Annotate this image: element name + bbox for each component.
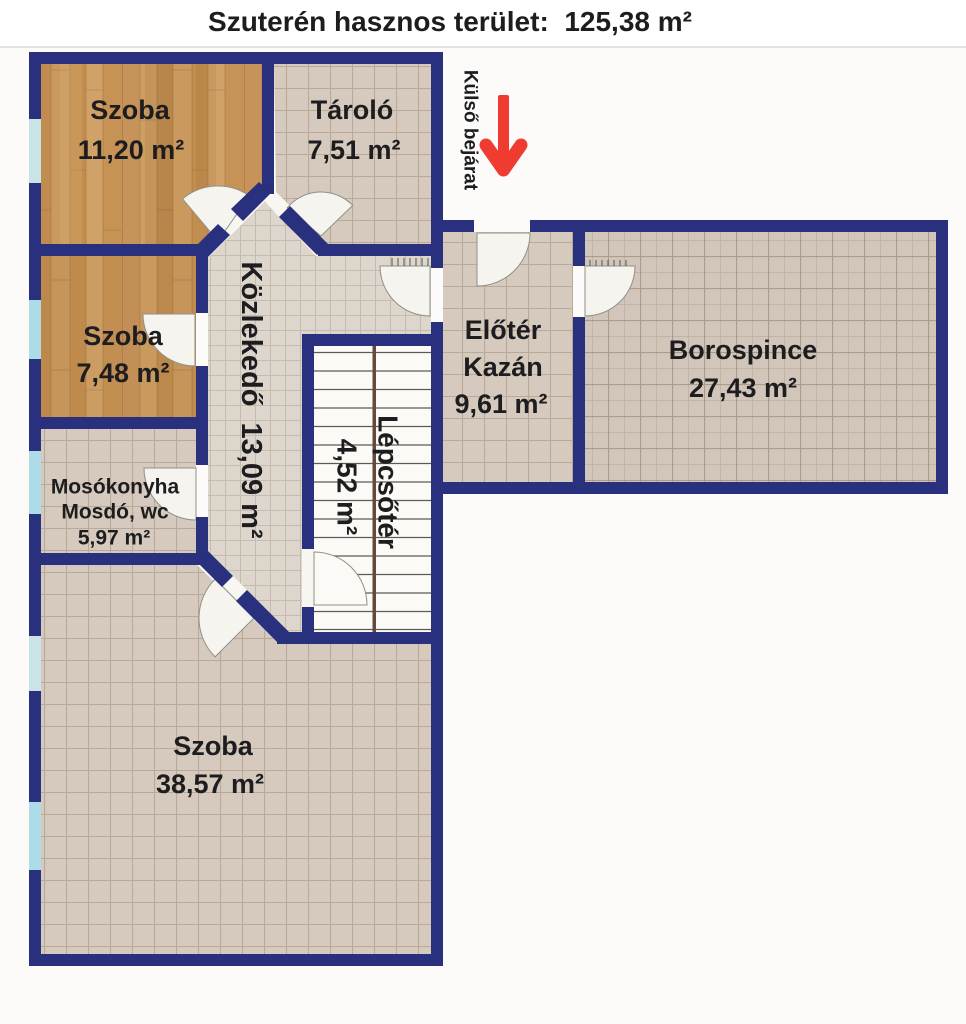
svg-text:27,43 m²: 27,43 m² (689, 373, 797, 403)
svg-text:Kazán: Kazán (463, 352, 543, 382)
svg-text:7,51 m²: 7,51 m² (307, 135, 400, 165)
svg-text:Lépcsőtér: Lépcsőtér (373, 415, 404, 549)
svg-text:Szuterén hasznos terület: 125: Szuterén hasznos terület: 125,38 m² (208, 6, 692, 37)
svg-text:4,52 m²: 4,52 m² (332, 439, 363, 536)
svg-text:Előtér: Előtér (465, 315, 542, 345)
svg-text:Mosdó, wc: Mosdó, wc (61, 501, 169, 524)
svg-text:Külső bejárat: Külső bejárat (460, 70, 481, 191)
svg-text:11,20 m²: 11,20 m² (78, 135, 185, 165)
svg-text:38,57 m²: 38,57 m² (156, 769, 264, 799)
svg-text:5,97 m²: 5,97 m² (78, 527, 150, 550)
svg-text:Borospince: Borospince (669, 335, 818, 365)
svg-text:9,61 m²: 9,61 m² (454, 389, 547, 419)
svg-text:Szoba: Szoba (83, 321, 163, 351)
svg-text:Szoba: Szoba (173, 731, 253, 761)
svg-text:Tároló: Tároló (311, 95, 394, 125)
svg-text:7,48 m²: 7,48 m² (76, 358, 169, 388)
svg-text:Szoba: Szoba (90, 95, 170, 125)
svg-text:Közlekedő 13,09 m²: Közlekedő 13,09 m² (235, 261, 267, 539)
svg-text:Mosókonyha: Mosókonyha (51, 476, 180, 499)
